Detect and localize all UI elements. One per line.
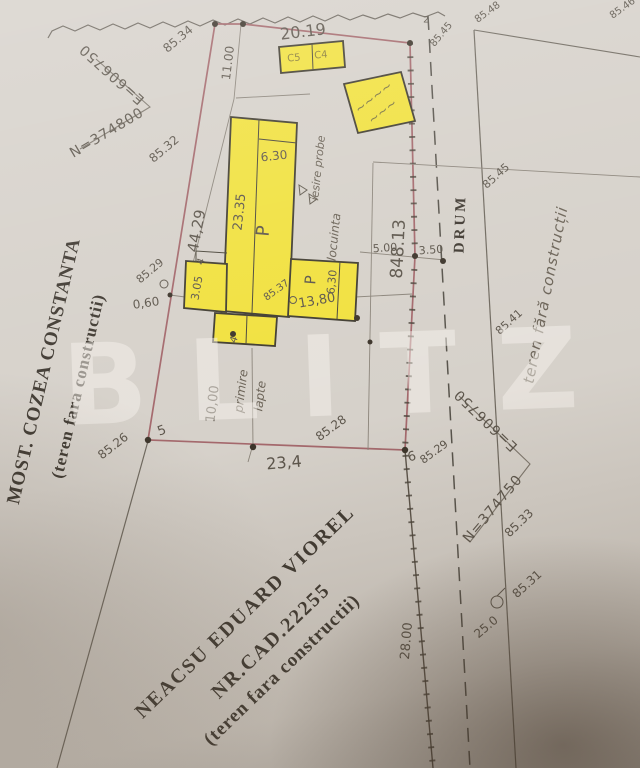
parcel-area: 848.13 bbox=[389, 219, 409, 279]
cadastral-plan-photo: 20.19 11.00 44,29 23.35 6.30 3.05 0,60 1… bbox=[0, 0, 640, 768]
pole-tick bbox=[497, 588, 505, 596]
dimension-house-width: 6.30 bbox=[260, 149, 288, 164]
dimension-half-road: 3.50 bbox=[418, 244, 443, 257]
dimension-bottom-edge: 23,4 bbox=[266, 453, 303, 472]
house-storeys-main: P bbox=[255, 225, 274, 237]
lower-left-boundary bbox=[57, 441, 148, 768]
point-number-2: 2 bbox=[423, 17, 429, 26]
house-storeys-wing: P bbox=[303, 275, 319, 285]
milk-room-label-2: lapte bbox=[252, 380, 268, 412]
dimension-wing-width: 6,30 bbox=[325, 269, 339, 295]
house-right-wing bbox=[288, 259, 358, 321]
dimension-house-length: 23.35 bbox=[232, 193, 249, 231]
dimension-gap-west: 0,60 bbox=[132, 295, 160, 311]
outbuilding-cell-right: C4 bbox=[314, 50, 328, 61]
entrance-triangle bbox=[299, 185, 307, 195]
spot-elevation-circle bbox=[160, 280, 168, 288]
plan-linework bbox=[0, 0, 640, 768]
pole-symbol bbox=[491, 596, 503, 608]
road-name: DRUM bbox=[452, 194, 469, 253]
upper-right-neighbor-line bbox=[474, 30, 640, 57]
dimension-road-frontage: 28.00 bbox=[399, 622, 415, 660]
house-lower-annex bbox=[213, 313, 277, 346]
outbuilding-cell-left: C5 bbox=[287, 53, 301, 64]
inner-strip-line bbox=[368, 163, 373, 450]
road-right-edge bbox=[474, 30, 516, 768]
